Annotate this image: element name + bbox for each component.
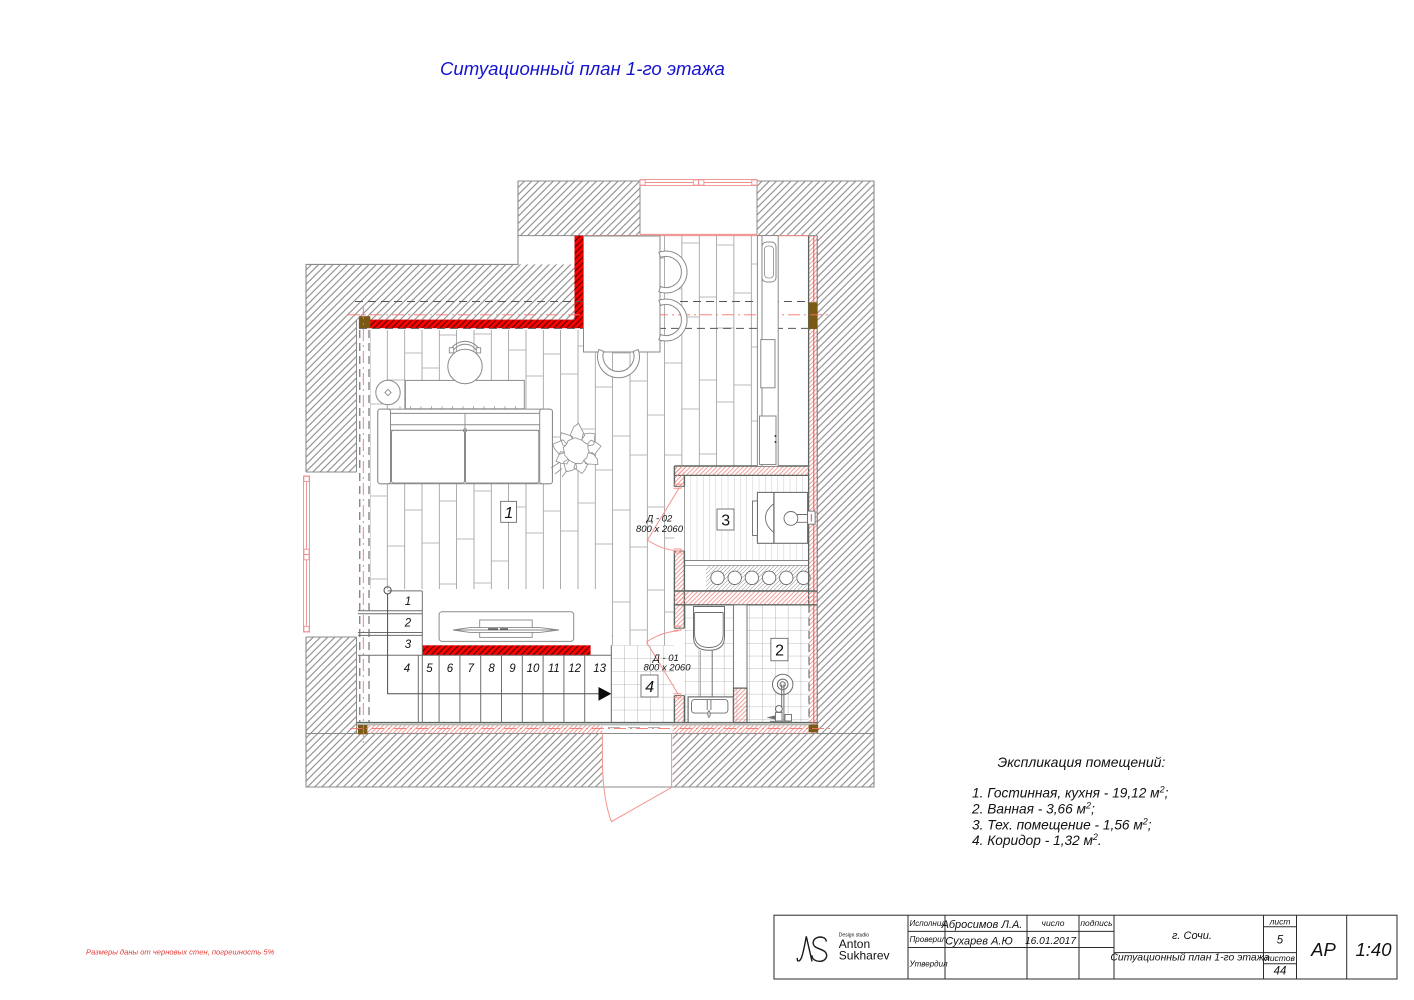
- svg-text:Д - 02: Д - 02: [646, 514, 673, 525]
- svg-text:4. Коридор - 1,32 м2.: 4. Коридор - 1,32 м2.: [972, 832, 1102, 848]
- svg-text:1: 1: [405, 596, 411, 608]
- svg-text:10: 10: [527, 663, 540, 675]
- svg-text:Абросимов Л.А.: Абросимов Л.А.: [941, 919, 1023, 931]
- svg-text:подпись: подпись: [1080, 918, 1112, 928]
- svg-text:800 х 2060: 800 х 2060: [636, 524, 684, 535]
- svg-text:44: 44: [1274, 966, 1287, 978]
- svg-text:8: 8: [488, 663, 495, 675]
- svg-text:11: 11: [548, 663, 560, 675]
- svg-text:3: 3: [721, 513, 730, 530]
- svg-text:12: 12: [568, 663, 581, 675]
- svg-text:АР: АР: [1310, 939, 1336, 960]
- svg-text:2: 2: [775, 643, 784, 660]
- svg-text:9: 9: [509, 663, 516, 675]
- svg-text:4: 4: [645, 679, 654, 696]
- svg-text:Размеры даны от черновых стен,: Размеры даны от черновых стен, погрешнос…: [86, 948, 275, 957]
- svg-text:2: 2: [404, 618, 412, 630]
- svg-text:3: 3: [405, 639, 412, 651]
- svg-text:5: 5: [1277, 935, 1284, 947]
- svg-text:5: 5: [426, 663, 433, 675]
- svg-text:Утвердил: Утвердил: [909, 960, 949, 969]
- svg-text:число: число: [1042, 918, 1065, 928]
- svg-text:3. Тех. помещение - 1,56 м2;: 3. Тех. помещение - 1,56 м2;: [972, 816, 1152, 832]
- svg-text:1:40: 1:40: [1355, 939, 1392, 960]
- svg-text:2. Ванная - 3,66 м2;: 2. Ванная - 3,66 м2;: [971, 800, 1095, 816]
- svg-text:Ситуационный план 1-го этажа: Ситуационный план 1-го этажа: [440, 58, 725, 79]
- svg-text:4: 4: [404, 663, 410, 675]
- svg-text:Sukharev: Sukharev: [839, 949, 890, 963]
- svg-text:Проверил: Проверил: [910, 935, 947, 944]
- svg-text:Экспликация помещений:: Экспликация помещений:: [998, 754, 1166, 770]
- svg-text:лист: лист: [1269, 916, 1291, 926]
- svg-text:1. Гостинная, кухня - 19,12 м2: 1. Гостинная, кухня - 19,12 м2;: [972, 785, 1169, 801]
- svg-text:13: 13: [593, 663, 606, 675]
- svg-text:16.01.2017: 16.01.2017: [1025, 936, 1076, 947]
- svg-text:Сухарев А.Ю: Сухарев А.Ю: [945, 935, 1013, 947]
- svg-text:г. Сочи.: г. Сочи.: [1172, 930, 1212, 942]
- svg-text:7: 7: [468, 663, 475, 675]
- svg-text:800 х 2060: 800 х 2060: [643, 663, 691, 674]
- svg-text:1: 1: [504, 505, 513, 522]
- svg-text:Ситуационный план 1-го этажа: Ситуационный план 1-го этажа: [1110, 952, 1269, 963]
- svg-text:листов: листов: [1264, 953, 1295, 963]
- svg-text:6: 6: [447, 663, 454, 675]
